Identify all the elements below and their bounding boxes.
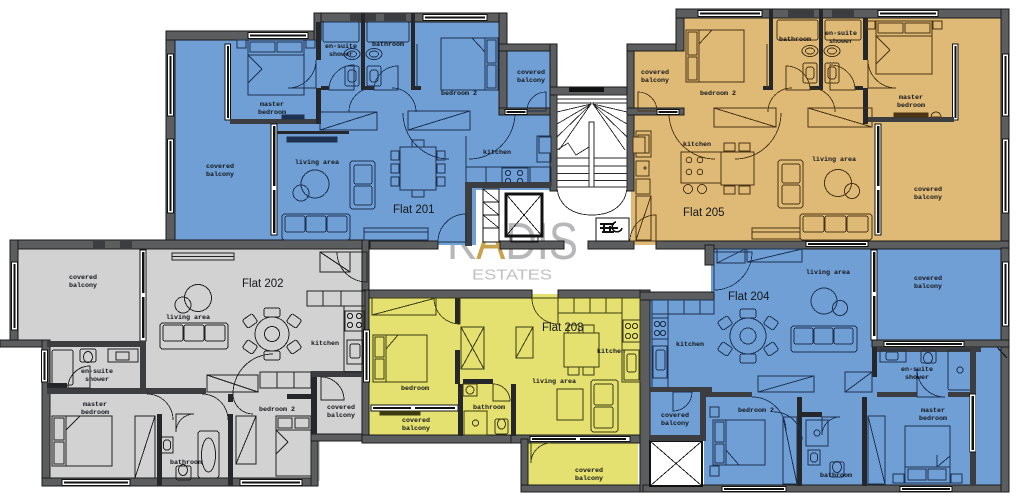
svg-text:covered: covered bbox=[206, 163, 234, 171]
svg-text:Flat 201: Flat 201 bbox=[393, 204, 435, 216]
svg-text:balcony: balcony bbox=[517, 77, 545, 85]
svg-text:balcony: balcony bbox=[69, 282, 97, 290]
svg-text:bathroom: bathroom bbox=[170, 459, 202, 467]
svg-text:shower: shower bbox=[85, 376, 109, 384]
svg-text:balcony: balcony bbox=[914, 194, 942, 202]
svg-text:covered: covered bbox=[641, 69, 669, 77]
svg-text:balcony: balcony bbox=[327, 412, 355, 420]
svg-text:living area: living area bbox=[532, 378, 576, 386]
svg-text:bedroom: bedroom bbox=[401, 385, 429, 393]
svg-text:master: master bbox=[899, 94, 923, 102]
svg-text:covered: covered bbox=[402, 417, 430, 425]
svg-text:kitchen: kitchen bbox=[311, 340, 339, 348]
svg-text:living area: living area bbox=[166, 314, 210, 322]
svg-text:covered: covered bbox=[69, 274, 97, 282]
svg-text:en-suite: en-suite bbox=[901, 366, 933, 374]
svg-text:kitchen: kitchen bbox=[597, 348, 625, 356]
svg-text:covered: covered bbox=[327, 404, 355, 412]
svg-text:Flat 205: Flat 205 bbox=[683, 207, 725, 219]
svg-text:Flat 204: Flat 204 bbox=[728, 291, 770, 303]
svg-text:en-suite: en-suite bbox=[81, 368, 113, 376]
svg-text:master: master bbox=[83, 401, 107, 409]
svg-text:covered: covered bbox=[661, 412, 689, 420]
svg-text:bedroom: bedroom bbox=[258, 109, 286, 117]
svg-text:bedroom 2: bedroom 2 bbox=[738, 407, 774, 415]
svg-text:bedroom 2: bedroom 2 bbox=[441, 90, 477, 98]
svg-text:kitchen: kitchen bbox=[483, 149, 511, 157]
svg-text:kitchen: kitchen bbox=[683, 141, 711, 149]
svg-text:living area: living area bbox=[295, 159, 339, 167]
svg-text:balcony: balcony bbox=[914, 283, 942, 291]
svg-text:balcony: balcony bbox=[402, 425, 430, 433]
svg-text:balcony: balcony bbox=[661, 420, 689, 428]
svg-text:bedroom: bedroom bbox=[919, 415, 947, 423]
svg-text:bathroom: bathroom bbox=[820, 472, 852, 480]
svg-text:balcony: balcony bbox=[575, 475, 603, 483]
svg-text:bathroom: bathroom bbox=[372, 41, 404, 49]
svg-text:covered: covered bbox=[914, 186, 942, 194]
svg-text:shower: shower bbox=[829, 38, 853, 46]
svg-text:bathroom: bathroom bbox=[779, 36, 811, 44]
svg-text:balcony: balcony bbox=[206, 171, 234, 179]
svg-text:balcony: balcony bbox=[641, 77, 669, 85]
svg-text:en-suite: en-suite bbox=[325, 43, 357, 51]
svg-text:master: master bbox=[260, 101, 284, 109]
svg-text:living area: living area bbox=[806, 269, 850, 277]
svg-text:ESTATES: ESTATES bbox=[472, 267, 552, 284]
svg-text:bedroom 2: bedroom 2 bbox=[700, 90, 736, 98]
svg-text:covered: covered bbox=[914, 275, 942, 283]
svg-text:shower: shower bbox=[905, 374, 929, 382]
svg-text:kitchen: kitchen bbox=[676, 341, 704, 349]
svg-text:bathroom: bathroom bbox=[473, 404, 505, 412]
svg-text:en-suite: en-suite bbox=[825, 30, 857, 38]
svg-text:bedroom 2: bedroom 2 bbox=[259, 406, 295, 414]
svg-text:Flat 202: Flat 202 bbox=[242, 278, 284, 290]
svg-text:shower: shower bbox=[329, 51, 353, 59]
svg-text:covered: covered bbox=[517, 69, 545, 77]
svg-text:bedroom: bedroom bbox=[897, 102, 925, 110]
svg-text:covered: covered bbox=[575, 467, 603, 475]
svg-text:bedroom: bedroom bbox=[81, 409, 109, 417]
svg-text:master: master bbox=[921, 407, 945, 415]
svg-text:living area: living area bbox=[812, 156, 856, 164]
svg-text:Flat 203: Flat 203 bbox=[542, 322, 584, 334]
